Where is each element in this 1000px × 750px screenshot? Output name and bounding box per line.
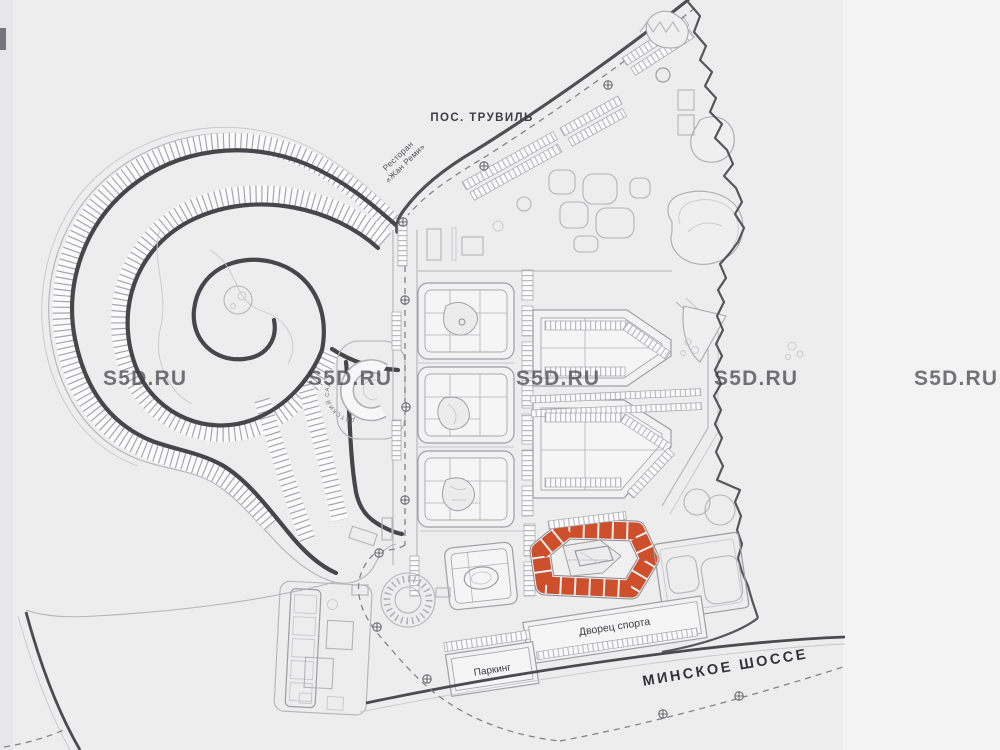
survey-marker-icon (401, 496, 409, 504)
site-plan-map: ДЕТСКИЙ САД (0, 0, 1000, 750)
pond-large (668, 191, 743, 264)
survey-marker-icon (402, 403, 410, 411)
edge-artifact (0, 28, 6, 50)
survey-marker-icon (735, 692, 743, 700)
survey-marker-icon (401, 296, 409, 304)
master-plan-svg: ДЕТСКИЙ САД (0, 0, 1000, 750)
survey-marker-icon (423, 675, 431, 683)
highlighted-building (540, 511, 649, 589)
watermark-text: S5D.RU (308, 367, 392, 390)
watermark-text: S5D.RU (714, 367, 798, 390)
watermark-text: S5D.RU (914, 367, 998, 390)
survey-marker-icon (480, 162, 488, 170)
forest-blob (691, 117, 734, 162)
survey-marker-icon (375, 549, 383, 557)
watermark-text: S5D.RU (516, 367, 600, 390)
survey-marker-icon (373, 623, 381, 631)
settlement-label: ПОС. ТРУВИЛЬ (430, 112, 533, 124)
survey-marker-icon (659, 710, 667, 718)
fountain-block (444, 542, 518, 611)
watermark-text: S5D.RU (103, 367, 187, 390)
survey-marker-icon (399, 218, 407, 226)
survey-marker-icon (604, 81, 612, 89)
